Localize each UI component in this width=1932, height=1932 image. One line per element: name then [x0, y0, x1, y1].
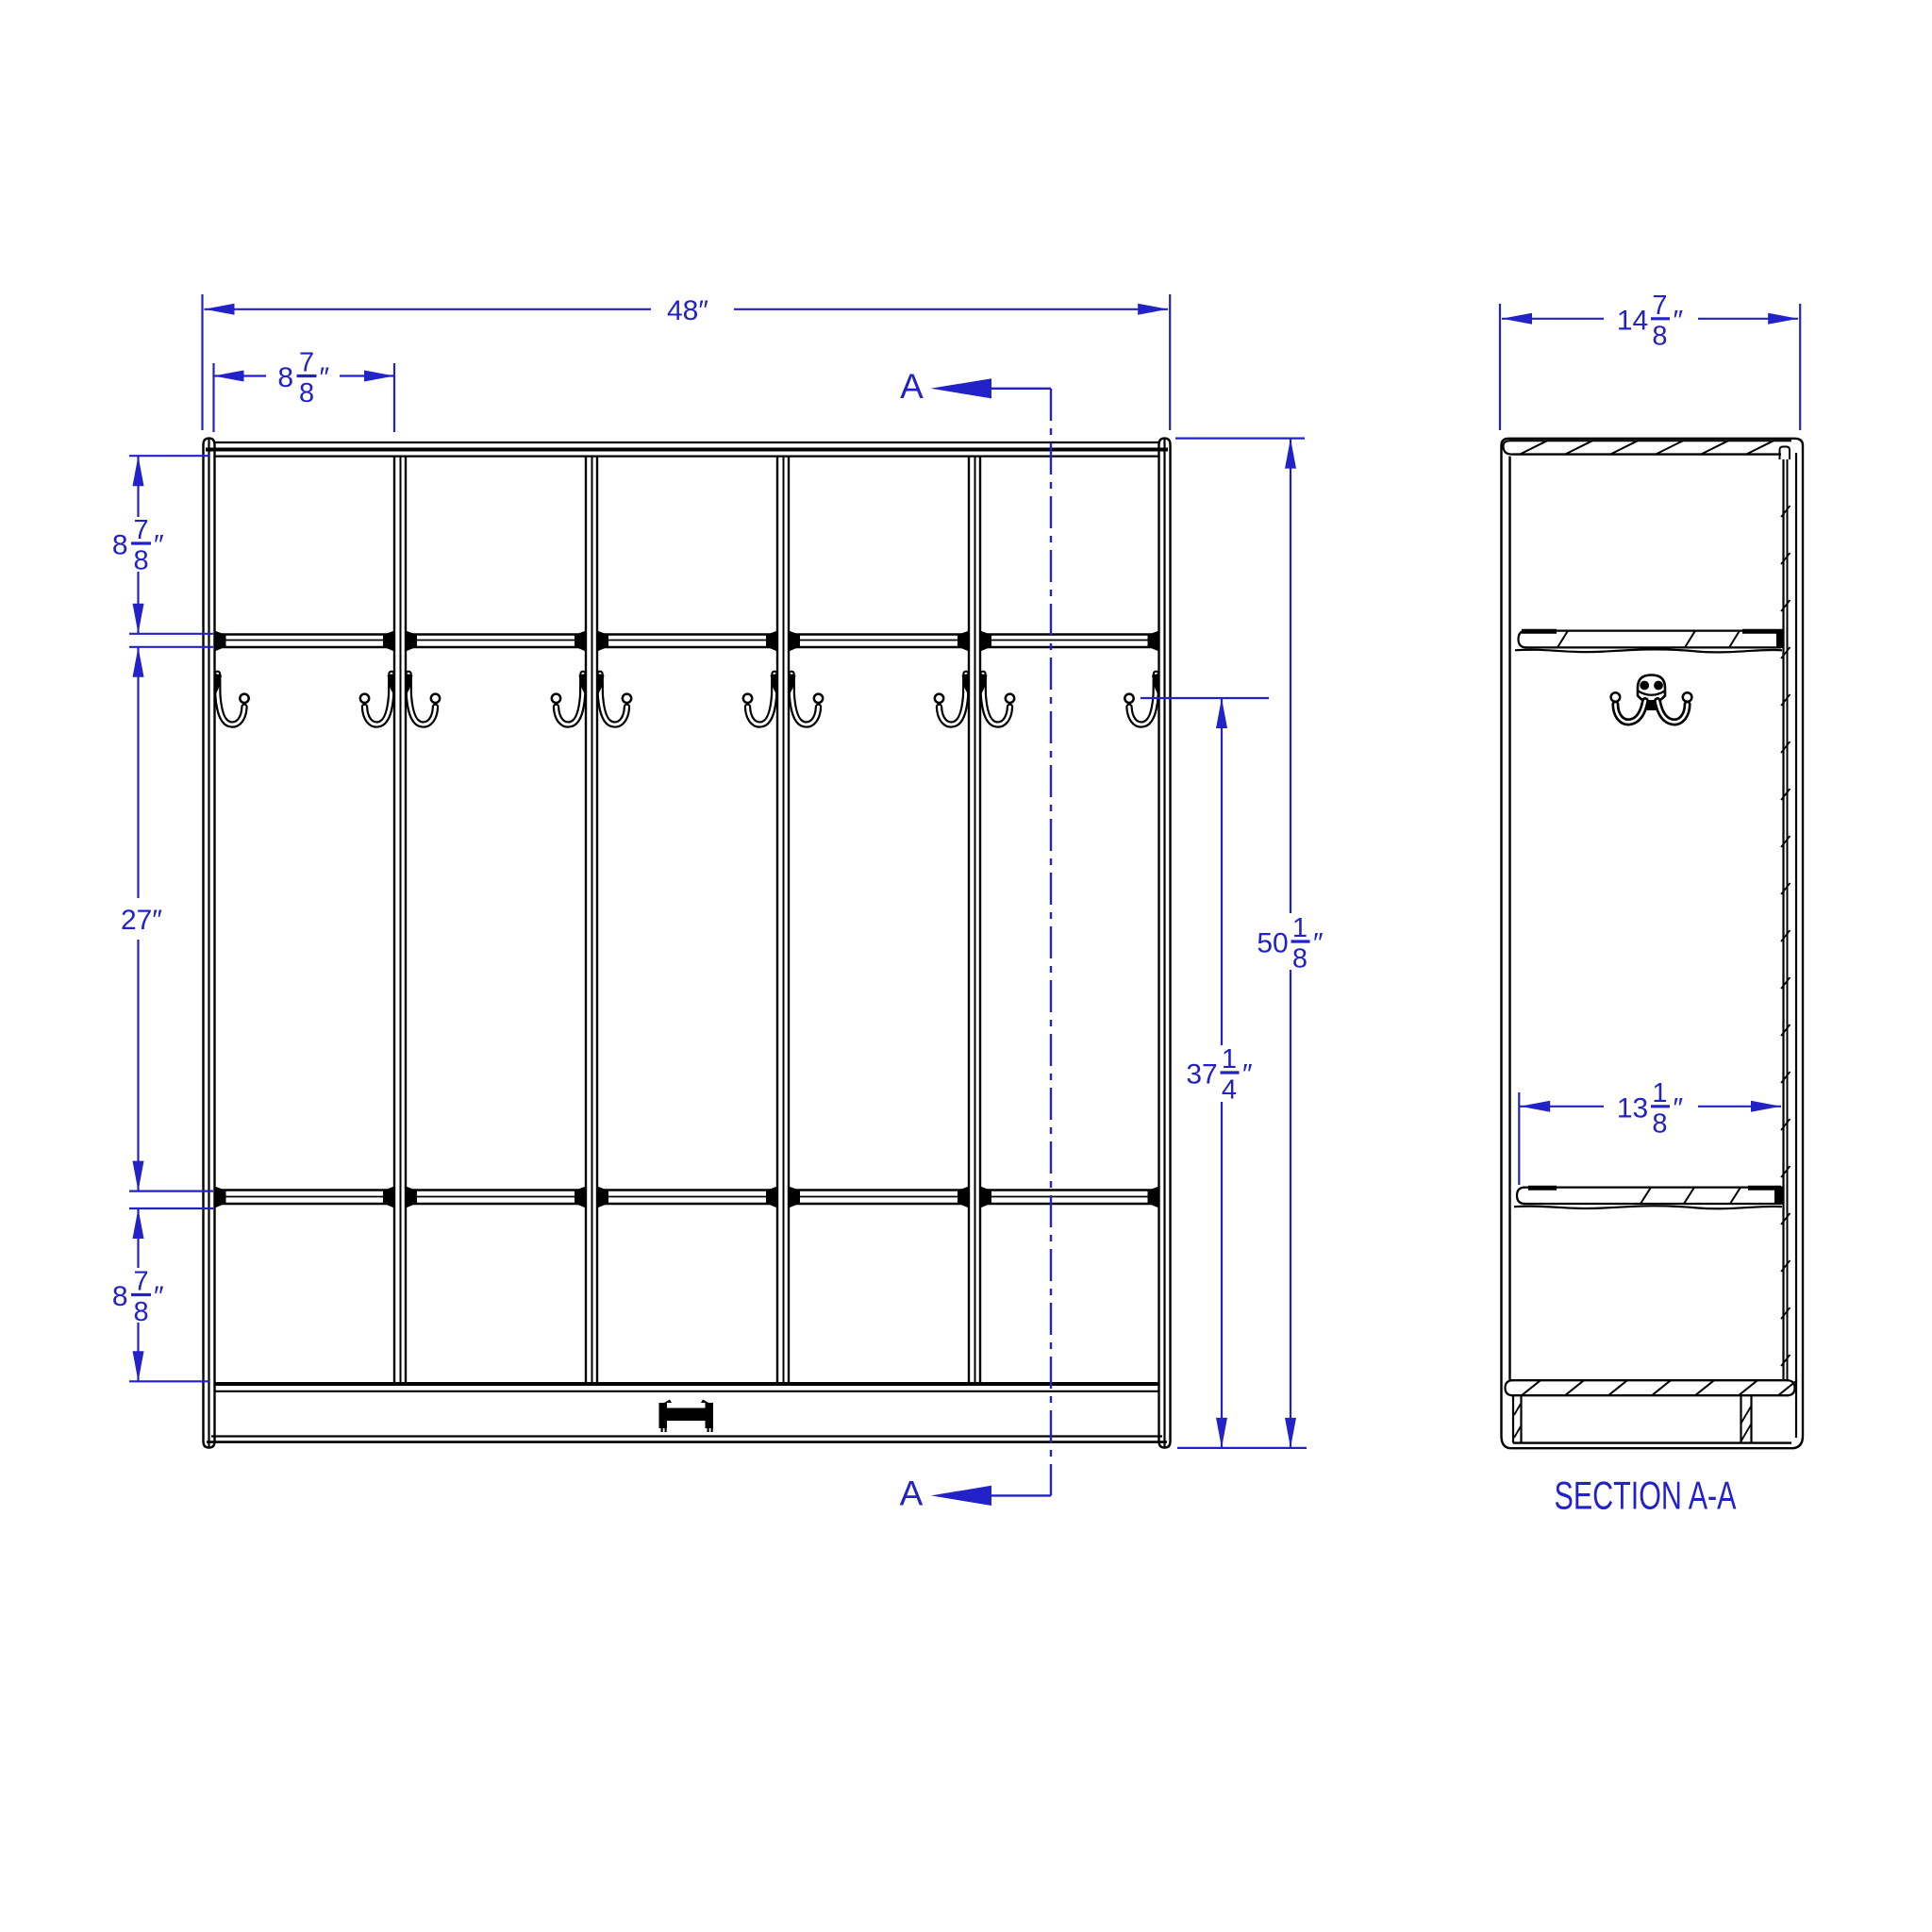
svg-text:″: ″: [1242, 1059, 1253, 1091]
svg-text:″: ″: [1674, 1092, 1684, 1124]
svg-text:13: 13: [1617, 1092, 1648, 1124]
svg-text:7: 7: [134, 1267, 149, 1297]
svg-text:8: 8: [1652, 321, 1667, 351]
svg-text:8: 8: [112, 1281, 128, 1312]
svg-text:4: 4: [1222, 1075, 1237, 1106]
svg-text:14: 14: [1617, 305, 1648, 336]
svg-text:A: A: [900, 367, 924, 406]
svg-text:″: ″: [1313, 928, 1324, 959]
svg-text:1: 1: [1652, 1078, 1667, 1108]
svg-text:″: ″: [1674, 305, 1684, 336]
svg-text:″: ″: [154, 1281, 164, 1312]
svg-text:8: 8: [277, 362, 293, 393]
svg-text:48″: 48″: [667, 295, 708, 326]
svg-text:50: 50: [1257, 928, 1288, 959]
svg-text:8: 8: [112, 530, 128, 561]
svg-text:SECTION A-A: SECTION A-A: [1555, 1474, 1737, 1518]
svg-text:″: ″: [320, 362, 330, 393]
svg-text:1: 1: [1292, 913, 1307, 943]
svg-text:7: 7: [299, 348, 314, 378]
svg-text:1: 1: [1222, 1044, 1237, 1074]
svg-text:8: 8: [134, 1297, 149, 1327]
svg-text:7: 7: [1652, 291, 1667, 321]
svg-text:37: 37: [1186, 1059, 1217, 1091]
svg-text:A: A: [900, 1474, 924, 1513]
svg-text:27″: 27″: [121, 905, 162, 936]
svg-text:8: 8: [299, 378, 314, 408]
svg-text:7: 7: [134, 515, 149, 545]
svg-text:8: 8: [1652, 1108, 1667, 1139]
svg-text:8: 8: [134, 546, 149, 576]
svg-text:″: ″: [154, 530, 164, 561]
svg-text:8: 8: [1292, 944, 1307, 974]
